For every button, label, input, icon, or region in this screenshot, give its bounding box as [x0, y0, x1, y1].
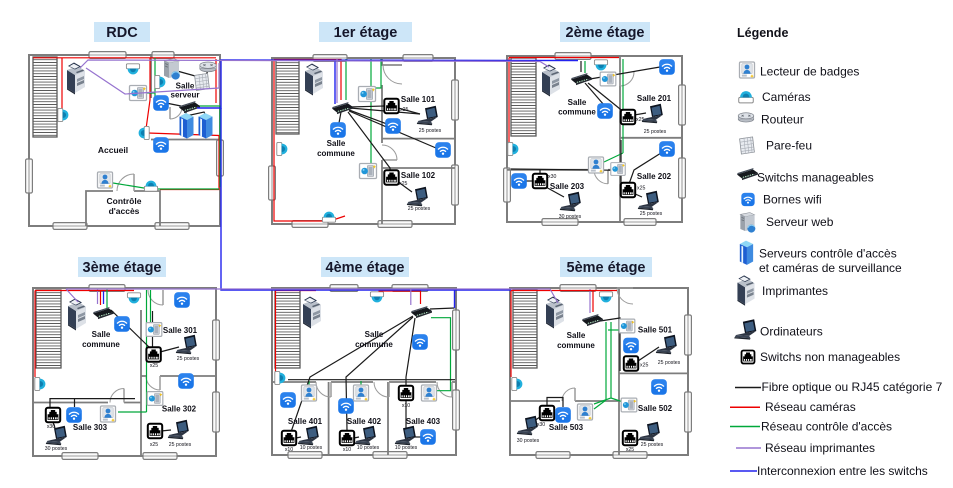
svg-text:commune: commune — [355, 340, 393, 349]
svg-text:x25: x25 — [150, 442, 158, 448]
svg-text:10 postes: 10 postes — [357, 445, 380, 451]
svg-text:3ème étage: 3ème étage — [83, 260, 162, 276]
svg-text:30 postes: 30 postes — [45, 446, 68, 452]
svg-text:Salle: Salle — [568, 98, 587, 107]
svg-text:Bornes wifi: Bornes wifi — [763, 193, 822, 207]
svg-text:Salle 301: Salle 301 — [163, 326, 198, 335]
svg-text:25 postes: 25 postes — [641, 442, 664, 448]
svg-text:Lecteur de badges: Lecteur de badges — [760, 65, 859, 79]
svg-text:25 postes: 25 postes — [658, 360, 681, 366]
svg-text:Salle: Salle — [365, 330, 384, 339]
svg-text:x25: x25 — [150, 363, 158, 369]
svg-text:x10: x10 — [343, 447, 351, 453]
svg-text:Réseau imprimantes: Réseau imprimantes — [765, 441, 875, 455]
svg-text:Salle 503: Salle 503 — [549, 423, 584, 432]
svg-text:2ème étage: 2ème étage — [566, 25, 645, 41]
svg-text:Salle 102: Salle 102 — [401, 171, 436, 180]
svg-text:commune: commune — [558, 108, 596, 117]
svg-text:commune: commune — [82, 340, 120, 349]
svg-text:Légende: Légende — [737, 26, 788, 40]
svg-text:1er étage: 1er étage — [334, 25, 398, 41]
svg-text:10 postes: 10 postes — [395, 445, 418, 451]
svg-text:Salle 401: Salle 401 — [288, 417, 323, 426]
svg-text:Accueil: Accueil — [98, 145, 128, 155]
svg-text:25 postes: 25 postes — [640, 211, 663, 217]
svg-text:Salle 502: Salle 502 — [638, 404, 673, 413]
svg-text:Salle 403: Salle 403 — [406, 417, 441, 426]
svg-text:x30: x30 — [537, 422, 545, 428]
svg-text:Salle 501: Salle 501 — [638, 326, 673, 335]
svg-text:Salle 101: Salle 101 — [401, 95, 436, 104]
svg-text:x25: x25 — [640, 363, 648, 369]
svg-text:Salle 303: Salle 303 — [73, 423, 108, 432]
svg-text:Salle 202: Salle 202 — [637, 172, 672, 181]
svg-text:Serveurs contrôle d'accès: Serveurs contrôle d'accès — [759, 247, 897, 261]
svg-text:Contrôle: Contrôle — [107, 196, 142, 206]
svg-text:Réseau contrôle d'accès: Réseau contrôle d'accès — [761, 420, 892, 434]
svg-text:commune: commune — [557, 341, 595, 350]
svg-text:25 postes: 25 postes — [169, 442, 192, 448]
svg-text:Salle: Salle — [92, 330, 111, 339]
svg-text:Salle: Salle — [567, 331, 586, 340]
svg-text:Caméras: Caméras — [762, 90, 811, 104]
svg-text:Routeur: Routeur — [761, 113, 804, 127]
svg-text:Salle 402: Salle 402 — [347, 417, 382, 426]
svg-text:25 postes: 25 postes — [177, 356, 200, 362]
svg-text:x30: x30 — [47, 424, 55, 430]
svg-text:10 postes: 10 postes — [300, 445, 323, 451]
svg-text:Interconnexion entre les switc: Interconnexion entre les switchs — [757, 464, 928, 478]
svg-text:25 postes: 25 postes — [408, 206, 431, 212]
svg-text:Salle 203: Salle 203 — [550, 182, 585, 191]
svg-text:5ème étage: 5ème étage — [567, 260, 646, 276]
svg-text:Pare-feu: Pare-feu — [766, 139, 812, 153]
svg-text:30 postes: 30 postes — [517, 438, 540, 444]
svg-text:Salle 201: Salle 201 — [637, 94, 672, 103]
svg-text:x25: x25 — [637, 186, 645, 192]
svg-text:serveur: serveur — [171, 91, 200, 100]
svg-text:Switchs non manageables: Switchs non manageables — [760, 350, 900, 364]
svg-text:Fibre optique ou RJ45 catégori: Fibre optique ou RJ45 catégorie 7 — [762, 380, 943, 394]
svg-text:Salle: Salle — [327, 139, 346, 148]
svg-text:x10: x10 — [285, 447, 293, 453]
svg-text:Imprimantes: Imprimantes — [762, 284, 828, 298]
svg-text:et caméras de surveillance: et caméras de surveillance — [759, 261, 902, 275]
svg-text:Salle 302: Salle 302 — [162, 405, 197, 414]
svg-text:Réseau caméras: Réseau caméras — [765, 400, 856, 414]
svg-text:Serveur web: Serveur web — [766, 215, 834, 229]
svg-text:commune: commune — [317, 149, 355, 158]
svg-text:30 postes: 30 postes — [559, 214, 582, 220]
svg-text:25 postes: 25 postes — [419, 128, 442, 134]
svg-text:25 postes: 25 postes — [644, 129, 667, 135]
svg-text:x25: x25 — [400, 107, 408, 113]
svg-text:x30: x30 — [548, 174, 556, 180]
svg-text:4ème étage: 4ème étage — [326, 260, 405, 276]
svg-text:x25: x25 — [399, 181, 407, 187]
svg-text:Switchs manageables: Switchs manageables — [757, 171, 874, 185]
svg-text:x10: x10 — [402, 403, 410, 409]
svg-text:RDC: RDC — [106, 25, 138, 41]
svg-text:Ordinateurs: Ordinateurs — [760, 325, 823, 339]
svg-text:d'accès: d'accès — [109, 206, 140, 216]
svg-text:x25: x25 — [626, 447, 634, 453]
